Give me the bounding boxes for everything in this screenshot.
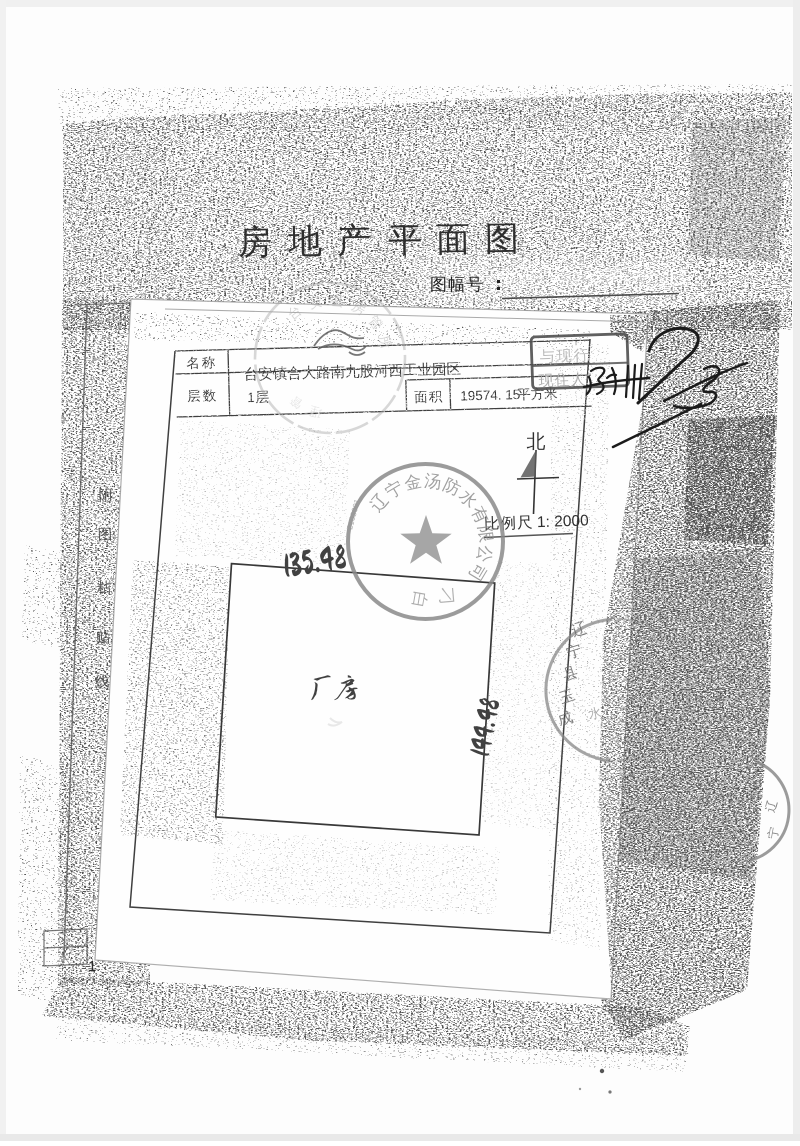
- svg-text:1: 2000: 1: 2000: [537, 512, 590, 531]
